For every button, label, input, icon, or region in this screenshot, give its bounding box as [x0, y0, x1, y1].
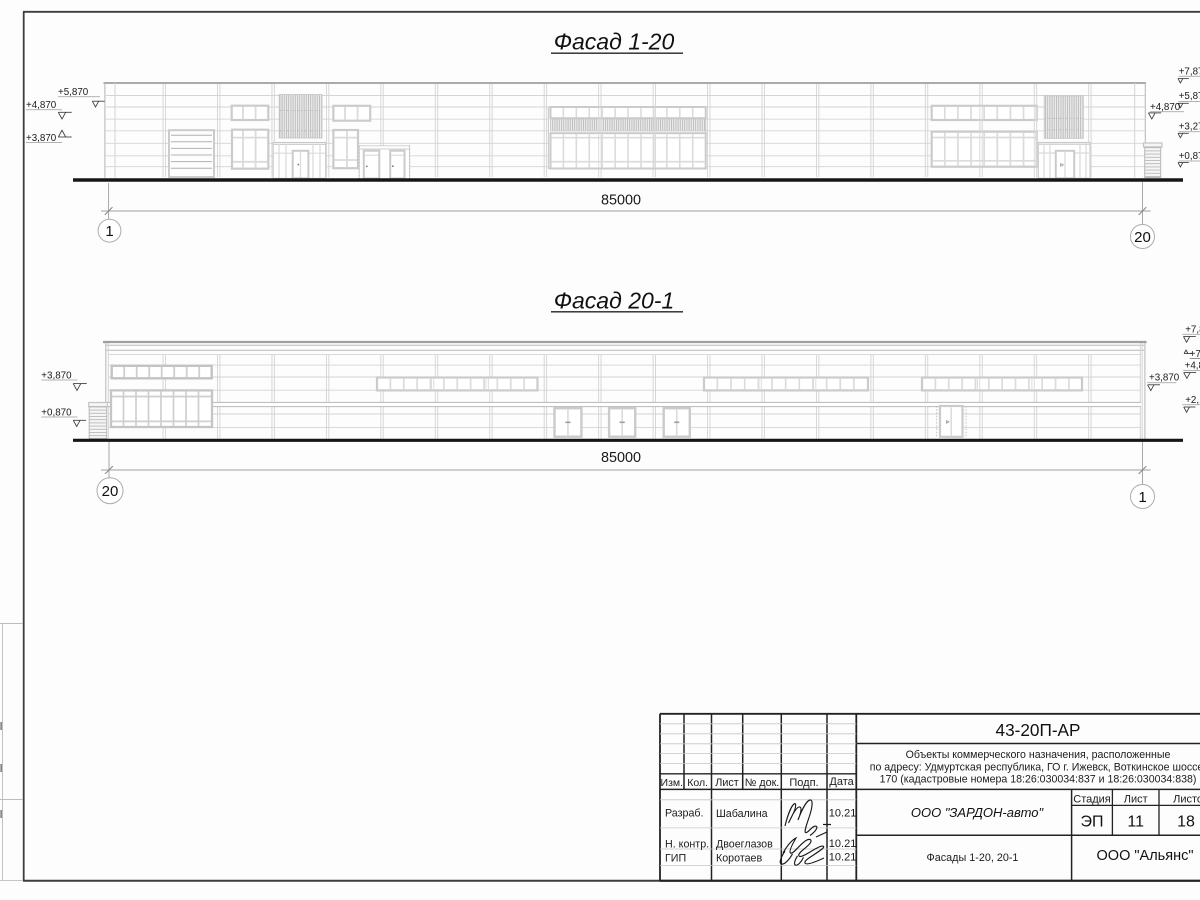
svg-text:85000: 85000 — [601, 450, 641, 466]
svg-text:10.21: 10.21 — [829, 838, 857, 850]
svg-text:Разраб.: Разраб. — [665, 808, 703, 820]
svg-text:Листов: Листов — [1173, 794, 1200, 806]
svg-text:1: 1 — [105, 223, 113, 240]
svg-text:Фасады 1-20, 20-1: Фасады 1-20, 20-1 — [927, 852, 1019, 864]
svg-text:+4,870: +4,870 — [1185, 361, 1200, 372]
svg-text:Фасад 1-20: Фасад 1-20 — [554, 29, 675, 55]
svg-text:Фасад 20-1: Фасад 20-1 — [554, 288, 675, 314]
svg-text:20: 20 — [1134, 229, 1151, 246]
svg-text:Лист: Лист — [715, 777, 739, 789]
svg-text:Кол.: Кол. — [687, 777, 708, 789]
svg-text:+3,270: +3,270 — [1179, 122, 1200, 133]
svg-text:ГИП: ГИП — [665, 853, 686, 865]
svg-text:43-20П-АР: 43-20П-АР — [996, 720, 1081, 740]
svg-text:Изм.: Изм. — [661, 777, 684, 789]
svg-text:№ док.: № док. — [745, 777, 780, 789]
svg-text:по адресу: Удмуртская республи: по адресу: Удмуртская республика, ГО г. … — [870, 762, 1200, 774]
svg-text:+5,870: +5,870 — [1179, 91, 1200, 102]
svg-text:Стадия: Стадия — [1073, 794, 1111, 806]
svg-text:85000: 85000 — [601, 193, 641, 209]
svg-text:Коротаев: Коротаев — [716, 853, 762, 865]
svg-text:18: 18 — [1177, 814, 1195, 831]
svg-text:Дата: Дата — [829, 776, 854, 788]
svg-text:1: 1 — [1138, 489, 1146, 506]
svg-text:+7,870: +7,870 — [1185, 325, 1200, 336]
svg-text:Двоеглазов: Двоеглазов — [716, 839, 773, 851]
svg-text:Лист: Лист — [1124, 794, 1148, 806]
svg-text:+3,870: +3,870 — [1149, 373, 1180, 384]
svg-text:+2,140: +2,140 — [1185, 395, 1200, 406]
svg-text:10.21: 10.21 — [829, 852, 857, 864]
svg-text:20: 20 — [102, 483, 119, 500]
svg-text:+0,870: +0,870 — [1179, 151, 1200, 162]
svg-text:ООО "ЗАРДОН-авто": ООО "ЗАРДОН-авто" — [911, 805, 1045, 820]
svg-text:Подп.: Подп. — [789, 777, 818, 789]
svg-text:Объекты коммерческого назначен: Объекты коммерческого назначения, распол… — [906, 749, 1171, 761]
svg-text:ООО "Альянс": ООО "Альянс" — [1097, 848, 1194, 864]
svg-text:+4,870: +4,870 — [26, 100, 57, 111]
svg-text:11: 11 — [1127, 814, 1144, 831]
svg-text:ЭП: ЭП — [1081, 814, 1104, 831]
svg-text:10.21: 10.21 — [829, 808, 857, 820]
svg-text:170 (кадастровые номера 18:26:: 170 (кадастровые номера 18:26:030034:837… — [880, 773, 1197, 785]
svg-text:Н. контр.: Н. контр. — [665, 839, 709, 851]
svg-text:Шабалина: Шабалина — [716, 808, 768, 820]
svg-text:+7,870: +7,870 — [1179, 66, 1200, 77]
